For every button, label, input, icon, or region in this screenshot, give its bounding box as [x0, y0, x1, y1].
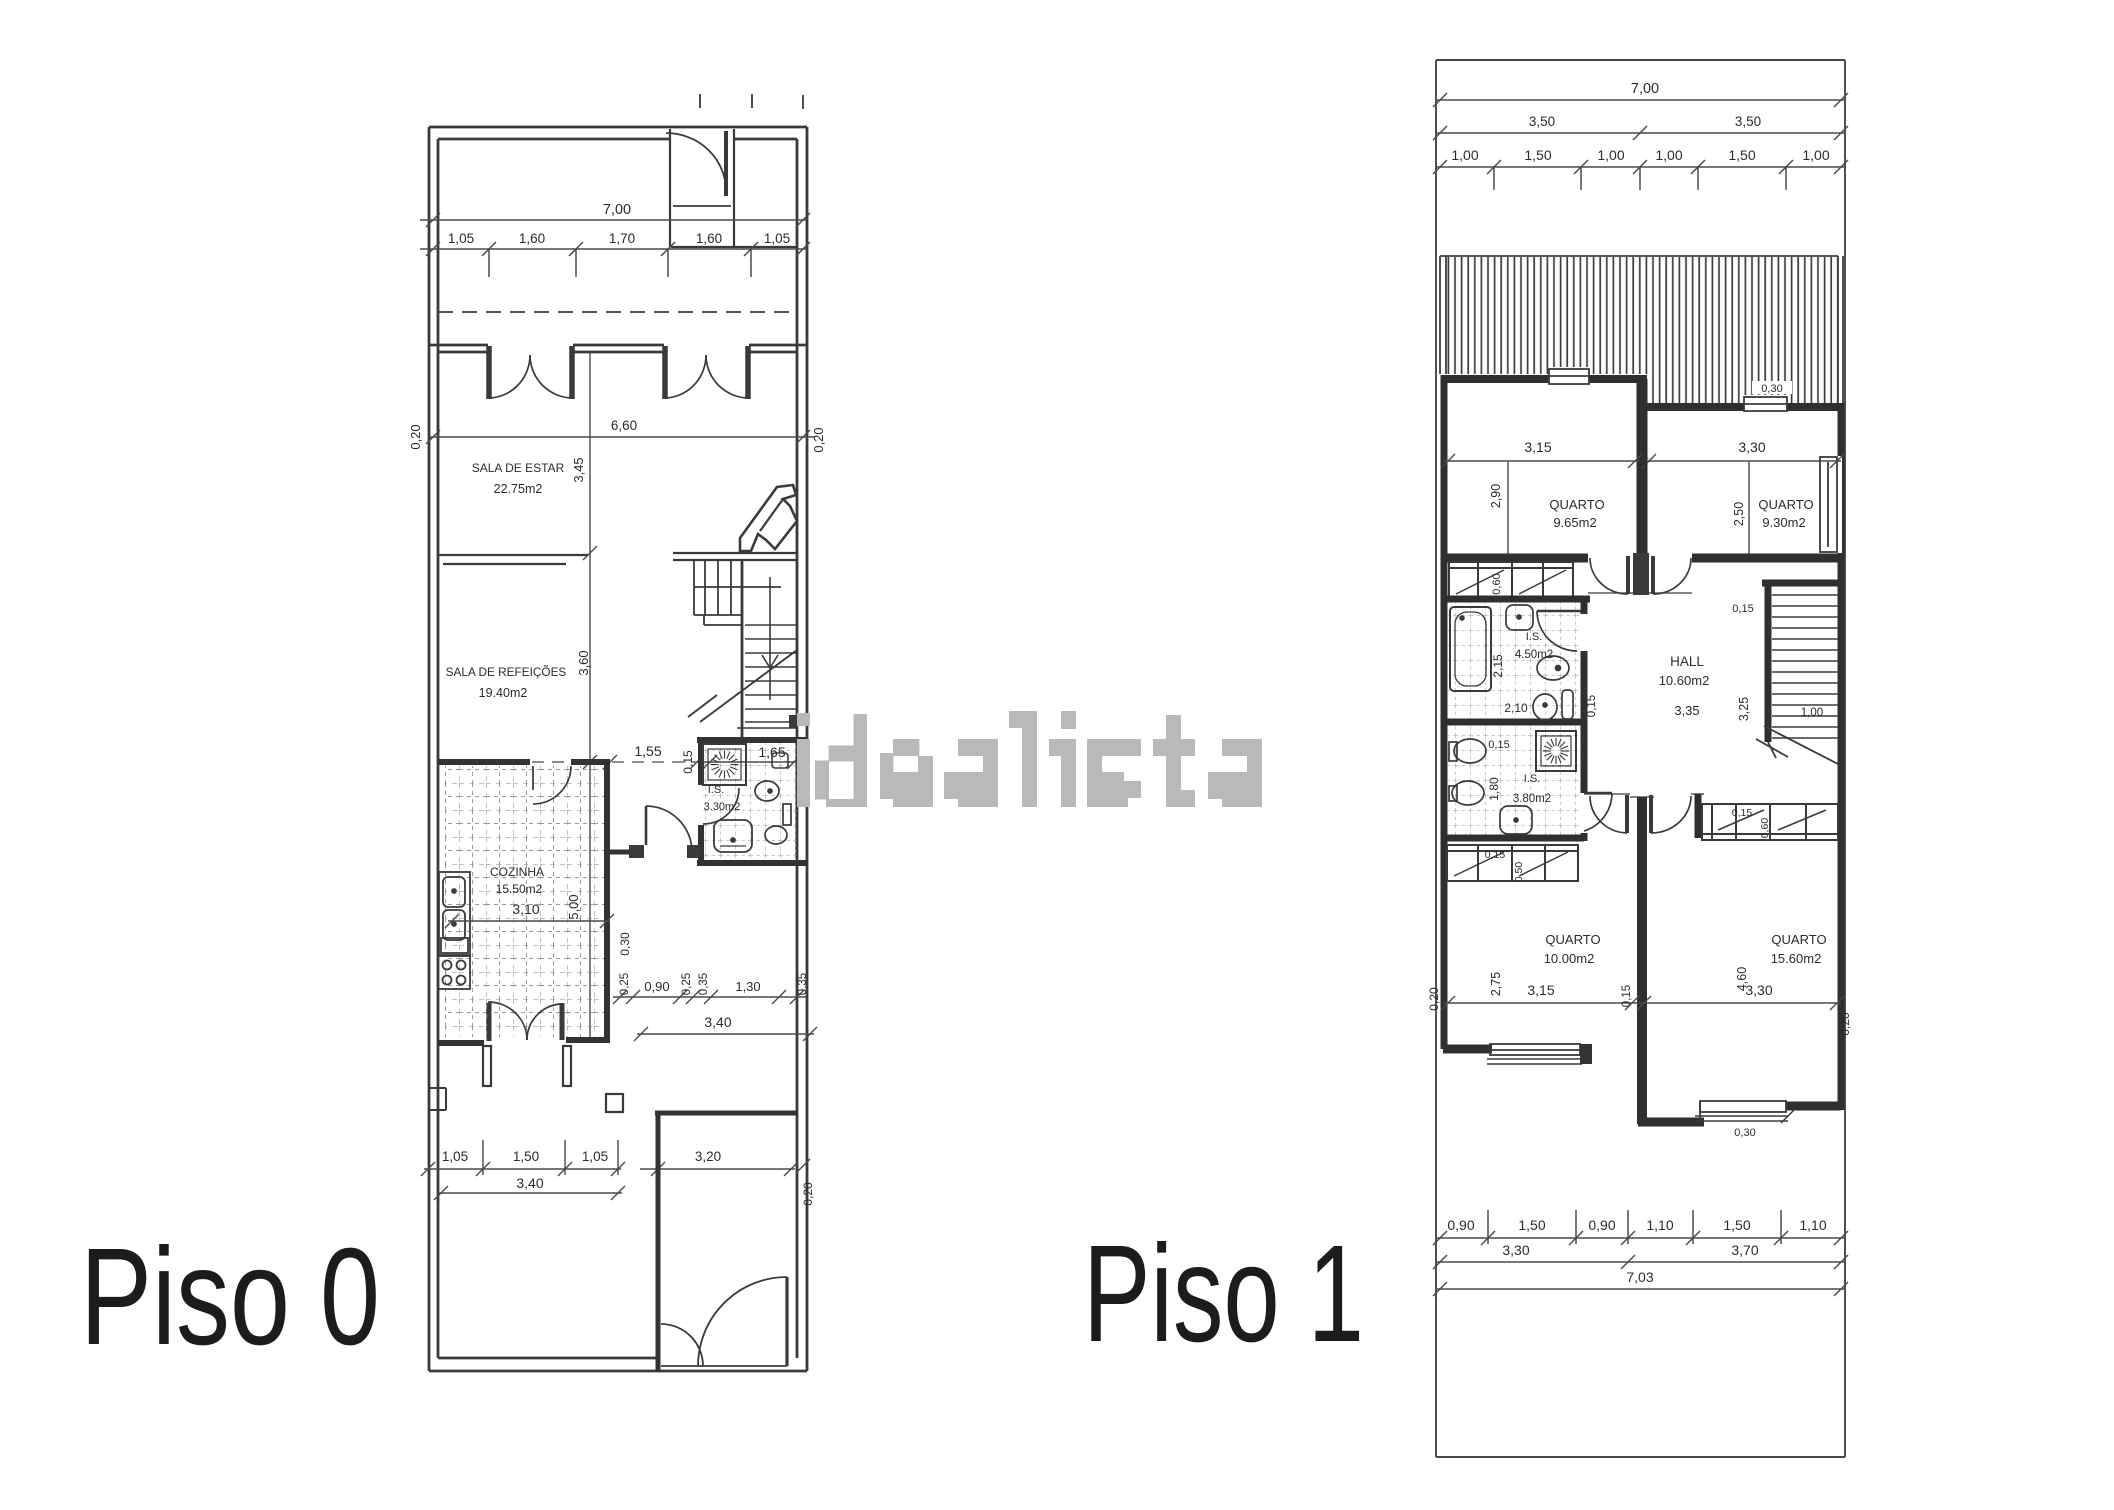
svg-text:1,70: 1,70 — [609, 231, 635, 246]
svg-text:2,90: 2,90 — [1489, 484, 1503, 508]
svg-text:1,05: 1,05 — [442, 1149, 468, 1164]
svg-text:10.00m2: 10.00m2 — [1544, 951, 1595, 966]
svg-text:1,50: 1,50 — [1524, 147, 1551, 163]
svg-text:0,30: 0,30 — [1734, 1127, 1755, 1139]
svg-text:I.S.: I.S. — [1524, 773, 1541, 785]
svg-text:0,15: 0,15 — [1638, 444, 1650, 466]
svg-text:1,50: 1,50 — [1723, 1217, 1750, 1233]
svg-text:0,15: 0,15 — [1485, 849, 1506, 861]
svg-text:QUARTO: QUARTO — [1549, 497, 1604, 512]
svg-text:3,30: 3,30 — [1745, 982, 1772, 998]
svg-text:1,10: 1,10 — [1799, 1217, 1826, 1233]
svg-text:3,45: 3,45 — [571, 457, 586, 482]
svg-text:0,15: 0,15 — [1621, 985, 1633, 1007]
svg-text:COZINHA: COZINHA — [490, 865, 544, 879]
svg-text:0,15: 0,15 — [1732, 603, 1753, 615]
svg-text:1,80: 1,80 — [1487, 777, 1501, 801]
svg-text:3,25: 3,25 — [1737, 697, 1751, 721]
svg-text:1,50: 1,50 — [1728, 147, 1755, 163]
svg-text:1,10: 1,10 — [1646, 1217, 1673, 1233]
svg-text:2,75: 2,75 — [1489, 972, 1503, 996]
svg-text:Piso 1: Piso 1 — [1083, 1217, 1364, 1371]
svg-text:3,10: 3,10 — [512, 901, 539, 917]
svg-text:15.60m2: 15.60m2 — [1771, 951, 1822, 966]
svg-text:3,40: 3,40 — [516, 1175, 543, 1191]
svg-text:0,90: 0,90 — [644, 979, 669, 994]
svg-text:0,20: 0,20 — [801, 1182, 815, 1206]
svg-text:0,15: 0,15 — [1488, 739, 1509, 751]
svg-text:0,25: 0,25 — [619, 973, 631, 995]
svg-text:1,50: 1,50 — [1518, 1217, 1545, 1233]
svg-text:1,50: 1,50 — [513, 1149, 539, 1164]
svg-text:3,70: 3,70 — [1731, 1242, 1758, 1258]
svg-text:SALA DE REFEIÇÕES: SALA DE REFEIÇÕES — [446, 665, 567, 679]
svg-text:3.80m2: 3.80m2 — [1513, 793, 1551, 805]
svg-text:6,60: 6,60 — [611, 418, 637, 433]
svg-text:3,60: 3,60 — [576, 650, 591, 675]
svg-text:1,60: 1,60 — [519, 231, 545, 246]
svg-text:0,90: 0,90 — [1447, 1217, 1474, 1233]
svg-text:0,35: 0,35 — [698, 973, 710, 995]
svg-text:QUARTO: QUARTO — [1758, 497, 1813, 512]
svg-text:0,20: 0,20 — [408, 424, 423, 449]
svg-text:QUARTO: QUARTO — [1771, 932, 1826, 947]
svg-text:7,00: 7,00 — [1631, 81, 1659, 97]
svg-text:QUARTO: QUARTO — [1545, 932, 1600, 947]
svg-text:0,15: 0,15 — [1586, 695, 1598, 717]
svg-text:HALL: HALL — [1670, 654, 1704, 669]
svg-text:0,25: 0,25 — [681, 973, 693, 995]
svg-text:1,05: 1,05 — [448, 231, 474, 246]
svg-text:0,30: 0,30 — [618, 932, 632, 956]
svg-text:0,20: 0,20 — [1427, 987, 1441, 1011]
svg-text:I.S.: I.S. — [708, 784, 725, 796]
svg-text:7,00: 7,00 — [603, 202, 631, 218]
svg-text:7,03: 7,03 — [1626, 1269, 1653, 1285]
svg-text:3,20: 3,20 — [695, 1149, 721, 1164]
svg-text:0,90: 0,90 — [1588, 1217, 1615, 1233]
svg-text:3,30: 3,30 — [1502, 1242, 1529, 1258]
svg-text:3,35: 3,35 — [1674, 703, 1699, 718]
svg-text:1,00: 1,00 — [1801, 707, 1823, 719]
svg-text:1,05: 1,05 — [764, 231, 790, 246]
svg-text:1,60: 1,60 — [696, 231, 722, 246]
svg-text:0,15: 0,15 — [681, 750, 695, 774]
svg-text:2,50: 2,50 — [1732, 502, 1746, 526]
svg-text:3.30m2: 3.30m2 — [704, 801, 741, 813]
svg-text:0,20: 0,20 — [1838, 1012, 1852, 1036]
svg-text:19.40m2: 19.40m2 — [479, 686, 528, 700]
svg-text:3,30: 3,30 — [1738, 439, 1765, 455]
svg-text:2,15: 2,15 — [1491, 654, 1505, 678]
svg-text:0,20: 0,20 — [811, 427, 826, 452]
svg-text:3,40: 3,40 — [704, 1014, 731, 1030]
svg-text:3,50: 3,50 — [1529, 114, 1555, 129]
svg-text:1,55: 1,55 — [634, 743, 661, 759]
svg-text:3,15: 3,15 — [1527, 982, 1554, 998]
svg-text:15.50m2: 15.50m2 — [496, 882, 543, 896]
svg-text:10.60m2: 10.60m2 — [1659, 673, 1710, 688]
svg-text:0,15: 0,15 — [1732, 807, 1753, 819]
svg-text:2,10: 2,10 — [1504, 701, 1528, 715]
svg-text:I.S.: I.S. — [1526, 631, 1543, 643]
svg-text:9.30m2: 9.30m2 — [1762, 515, 1805, 530]
svg-text:1,05: 1,05 — [582, 1149, 608, 1164]
svg-text:0,35: 0,35 — [797, 973, 809, 995]
svg-text:0,60: 0,60 — [1491, 573, 1503, 594]
svg-text:0,50: 0,50 — [1513, 862, 1525, 883]
svg-text:Piso 0: Piso 0 — [80, 1220, 380, 1374]
svg-text:1,00: 1,00 — [1451, 147, 1478, 163]
svg-text:1,00: 1,00 — [1655, 147, 1682, 163]
svg-text:22.75m2: 22.75m2 — [494, 482, 543, 496]
svg-text:3,50: 3,50 — [1735, 114, 1761, 129]
svg-text:4,60: 4,60 — [1735, 967, 1749, 991]
svg-text:1,30: 1,30 — [735, 979, 760, 994]
svg-text:0,60: 0,60 — [1759, 818, 1771, 839]
svg-text:4.50m2: 4.50m2 — [1515, 649, 1553, 661]
svg-text:5,00: 5,00 — [566, 894, 581, 919]
svg-text:3,15: 3,15 — [1524, 439, 1551, 455]
svg-text:0,30: 0,30 — [1761, 383, 1782, 395]
svg-text:9.65m2: 9.65m2 — [1553, 515, 1596, 530]
svg-text:SALA DE ESTAR: SALA DE ESTAR — [472, 461, 565, 475]
svg-text:1,00: 1,00 — [1802, 147, 1829, 163]
svg-text:1,00: 1,00 — [1597, 147, 1624, 163]
